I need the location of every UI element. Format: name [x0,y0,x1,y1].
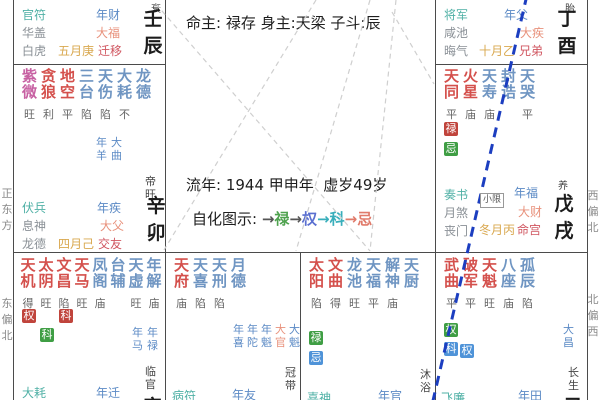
hua-quan-badge: 权 [444,323,458,337]
self-hua-legend: 自化图示: →禄→权→科→忌 [192,208,372,229]
star-row: 太阳文曲龙池天福解神天厨 [307,258,421,289]
hua-ji-badge: 忌 [309,351,323,365]
ganzhi-label: 戊戌 [553,191,575,245]
month-stem-label: 十月乙 [479,42,515,59]
minor-star-row: 年马年禄 [131,327,159,352]
direction-label-west-by-north: 西偏北 [587,188,599,236]
stage-label: 沐浴 [419,368,432,394]
center-info-panel: 命主: 禄存 身主:天梁 子斗:辰 流年: 1944 甲申年 虚岁49岁 自化图… [165,0,436,253]
god-label: 息神 [22,217,46,234]
god-label: 病符 [172,387,196,400]
ganzhi-label: 辛卯 [145,193,166,247]
stage-label: 养 [558,177,568,192]
god-label: 晦气 [444,42,468,59]
decade-palace-label: 大财 [518,203,542,220]
xiaoxian-marker[interactable]: 小限 [480,193,504,208]
star-row: 天同火星天寿封诰天哭 [442,69,537,100]
god-label: 奏书 [444,186,468,203]
self-hua-label: 自化图示: [192,210,262,228]
year-palace-label: 年官 [378,387,402,400]
year-palace-label: 年父 [504,6,528,23]
star-status-row: 得旺陷旺庙旺庙 [19,295,163,311]
god-label: 白虎 [22,42,46,59]
natal-palace-label: 兄弟 [519,42,543,59]
god-label: 丧门 [444,222,468,239]
decade-palace-label: 大福 [96,24,120,41]
god-label: 官符 [22,6,46,23]
hua-ke-badge: 科 [59,309,73,323]
direction-label-east-by-north: 东偏北 [1,296,13,344]
god-label: 龙德 [22,235,46,252]
star-row: 武曲破军天魁八座孤辰 [442,258,537,289]
god-label: 月煞 [444,204,468,221]
minor-star-row: 大昌 [562,324,575,349]
star-status-row: 旺利平陷陷不 [20,106,153,122]
hua-ji-badge: 忌 [444,142,458,156]
palace-jiaoyou[interactable]: 紫微贪狼地空三台天伤大耗龙德 旺利平陷陷不 年羊大曲 伏兵 年疾 息神 大父 龙… [13,64,166,253]
ganzhi-label: 丁酉 [556,6,578,60]
star-status-row: 平平旺庙陷 [442,295,537,311]
life-master-text: 命主: 禄存 身主:天梁 子斗:辰 [186,12,380,33]
god-label: 伏兵 [22,199,46,216]
palace-tianfu[interactable]: 天府天喜天刑月德 庙陷陷 年喜年陀年魁大官大魁 冠带 病符 年友 [165,252,301,400]
hua-quan-badge: 权 [22,309,36,323]
palace-wuqu[interactable]: 武曲破军天魁八座孤辰 平平旺庙陷 权 科 权 大昌 长生 飞廉 年田 己 [435,252,588,400]
god-label: 喜神 [307,389,331,400]
decade-palace-label: 大疾 [520,24,544,41]
god-label: 飞廉 [441,389,465,400]
hua-ke-badge: 科 [444,342,458,356]
ganzhi-label: 己 [562,394,584,400]
year-palace-label: 年疾 [97,199,121,216]
year-palace-label: 年福 [514,184,538,201]
star-row: 天机太阴文昌天马凤阁台辅天虚年解 [19,258,163,289]
stage-label: 临官 [144,365,157,391]
god-label: 华盖 [22,24,46,41]
ganzhi-label: 壬辰 [142,6,164,60]
stage-label: 长生 [567,366,580,392]
direction-label-north-by-west: 北偏西 [587,292,599,340]
year-palace-label: 年田 [518,387,542,400]
natal-palace-label: 迁移 [98,42,122,59]
palace-qianyi[interactable]: 官符 年财 华盖 大福 白虎 五月庚 迁移 衰 壬辰 [13,0,166,65]
year-palace-label: 年迁 [96,384,120,400]
direction-label-east: 正东方 [1,186,13,234]
star-status-row: 陷得旺平庙 [307,295,421,311]
hua-lu-badge: 禄 [444,122,458,136]
flow-year-text: 流年: 1944 甲申年 虚岁49岁 [186,174,387,195]
god-label: 咸池 [444,24,468,41]
year-palace-label: 年友 [232,386,256,400]
palace-taiyang[interactable]: 太阳文曲龙池天福解神天厨 陷得旺平庙 禄 忌 沐浴 喜神 年官 [300,252,436,400]
hua-quan-badge: 权 [460,344,474,358]
star-status-row: 庙陷陷 [172,295,248,311]
stage-label: 冠带 [284,366,297,392]
minor-star-row: 年羊大曲 [95,137,123,162]
palace-xiongdi[interactable]: 将军 年父 咸池 大疾 晦气 十月乙 兄弟 胎 丁酉 [435,0,588,65]
minor-star-row: 年喜年陀年魁大官大魁 [232,324,301,349]
palace-minggong[interactable]: 天同火星天寿封诰天哭 平庙庙平 禄 忌 小限 奏书 年福 月煞 大财 丧门 冬月… [435,64,588,253]
god-label: 大耗 [22,384,46,400]
self-hua-sequence: →禄→权→科→忌 [262,210,372,228]
natal-palace-label: 交友 [98,235,122,252]
natal-palace-label: 命宫 [517,221,541,238]
god-label: 将军 [444,6,468,23]
hua-ke-badge: 科 [40,328,54,342]
star-row: 紫微贪狼地空三台天伤大耗龙德 [20,69,153,100]
month-stem-label: 冬月丙 [479,221,515,238]
decade-palace-label: 大父 [100,217,124,234]
ziwei-chart: 官符 年财 华盖 大福 白虎 五月庚 迁移 衰 壬辰 命主: 禄存 身主:天梁 … [0,0,600,400]
year-palace-label: 年财 [96,6,120,23]
month-stem-label: 四月己 [58,235,94,252]
month-stem-label: 五月庚 [58,42,94,59]
star-row: 天府天喜天刑月德 [172,258,248,289]
hua-lu-badge: 禄 [309,331,323,345]
star-status-row: 平庙庙平 [442,106,537,122]
palace-tianji[interactable]: 天机太阴文昌天马凤阁台辅天虚年解 得旺陷旺庙旺庙 权 科 科 年马年禄 临官 大… [13,252,166,400]
ganzhi-label: 庚 [141,394,163,400]
